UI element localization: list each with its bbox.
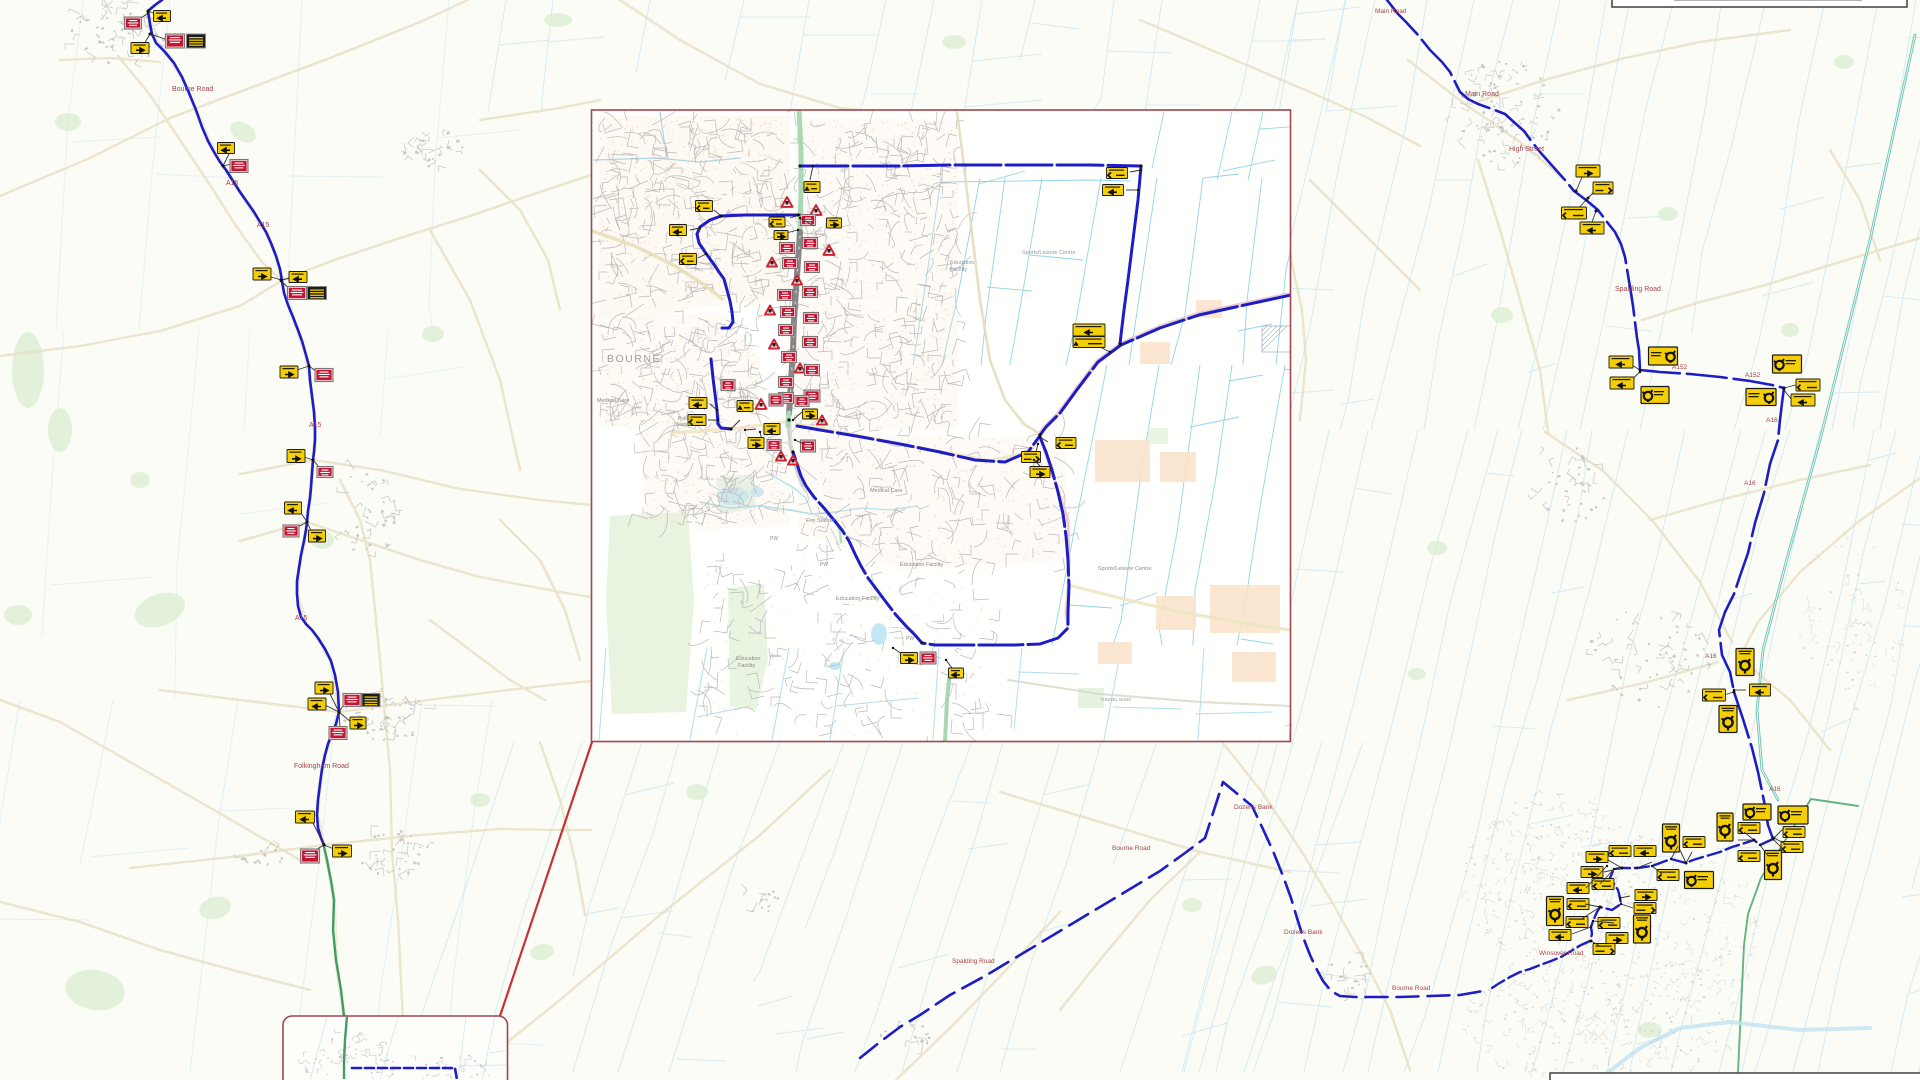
svg-text:TUNNEL BANK: TUNNEL BANK <box>1100 697 1131 702</box>
svg-text:A16: A16 <box>1766 417 1778 424</box>
svg-text:Medical Care: Medical Care <box>597 398 629 404</box>
svg-text:A15: A15 <box>257 222 270 229</box>
svg-text:Facility: Facility <box>950 267 967 273</box>
svg-text:PW: PW <box>906 636 914 642</box>
svg-text:BOURNE: BOURNE <box>607 353 661 365</box>
svg-text:A16: A16 <box>1744 480 1756 487</box>
svg-text:Education Facility: Education Facility <box>836 596 879 602</box>
svg-text:Spalding Road: Spalding Road <box>1615 286 1661 293</box>
svg-text:Education: Education <box>950 260 974 266</box>
svg-text:A15: A15 <box>226 180 239 187</box>
svg-text:Main Road: Main Road <box>1465 91 1499 98</box>
svg-text:Education Facility: Education Facility <box>900 562 943 568</box>
svg-text:Station: Station <box>676 422 692 428</box>
svg-text:PW: PW <box>820 562 828 568</box>
svg-text:A16: A16 <box>1705 653 1717 660</box>
svg-text:PW: PW <box>770 536 778 542</box>
svg-text:Spalding Road: Spalding Road <box>952 958 995 965</box>
svg-text:A152: A152 <box>1745 372 1761 379</box>
svg-text:Sports/Leisure Centre: Sports/Leisure Centre <box>1098 566 1152 572</box>
svg-text:Dozens Bank: Dozens Bank <box>1284 929 1323 936</box>
svg-text:Medical Care: Medical Care <box>870 488 902 494</box>
svg-text:A15: A15 <box>295 615 308 622</box>
svg-text:Folkingham Road: Folkingham Road <box>294 763 349 770</box>
svg-text:Sports/Leisure Centre: Sports/Leisure Centre <box>1022 250 1076 256</box>
svg-text:Winsover Road: Winsover Road <box>1539 950 1584 957</box>
svg-text:A16: A16 <box>1769 786 1781 793</box>
svg-text:Facility: Facility <box>738 663 755 669</box>
svg-text:Dozens Bank: Dozens Bank <box>1234 804 1273 811</box>
svg-text:A15: A15 <box>309 422 322 429</box>
svg-text:High Street: High Street <box>1509 146 1544 153</box>
svg-text:Fire Station: Fire Station <box>806 518 834 524</box>
svg-text:Bourne Road: Bourne Road <box>1112 845 1151 852</box>
svg-text:Education: Education <box>736 656 760 662</box>
svg-text:Bourne Road: Bourne Road <box>1392 985 1431 992</box>
svg-text:Main Road: Main Road <box>1375 8 1407 15</box>
svg-text:Bourne Road: Bourne Road <box>172 86 213 93</box>
